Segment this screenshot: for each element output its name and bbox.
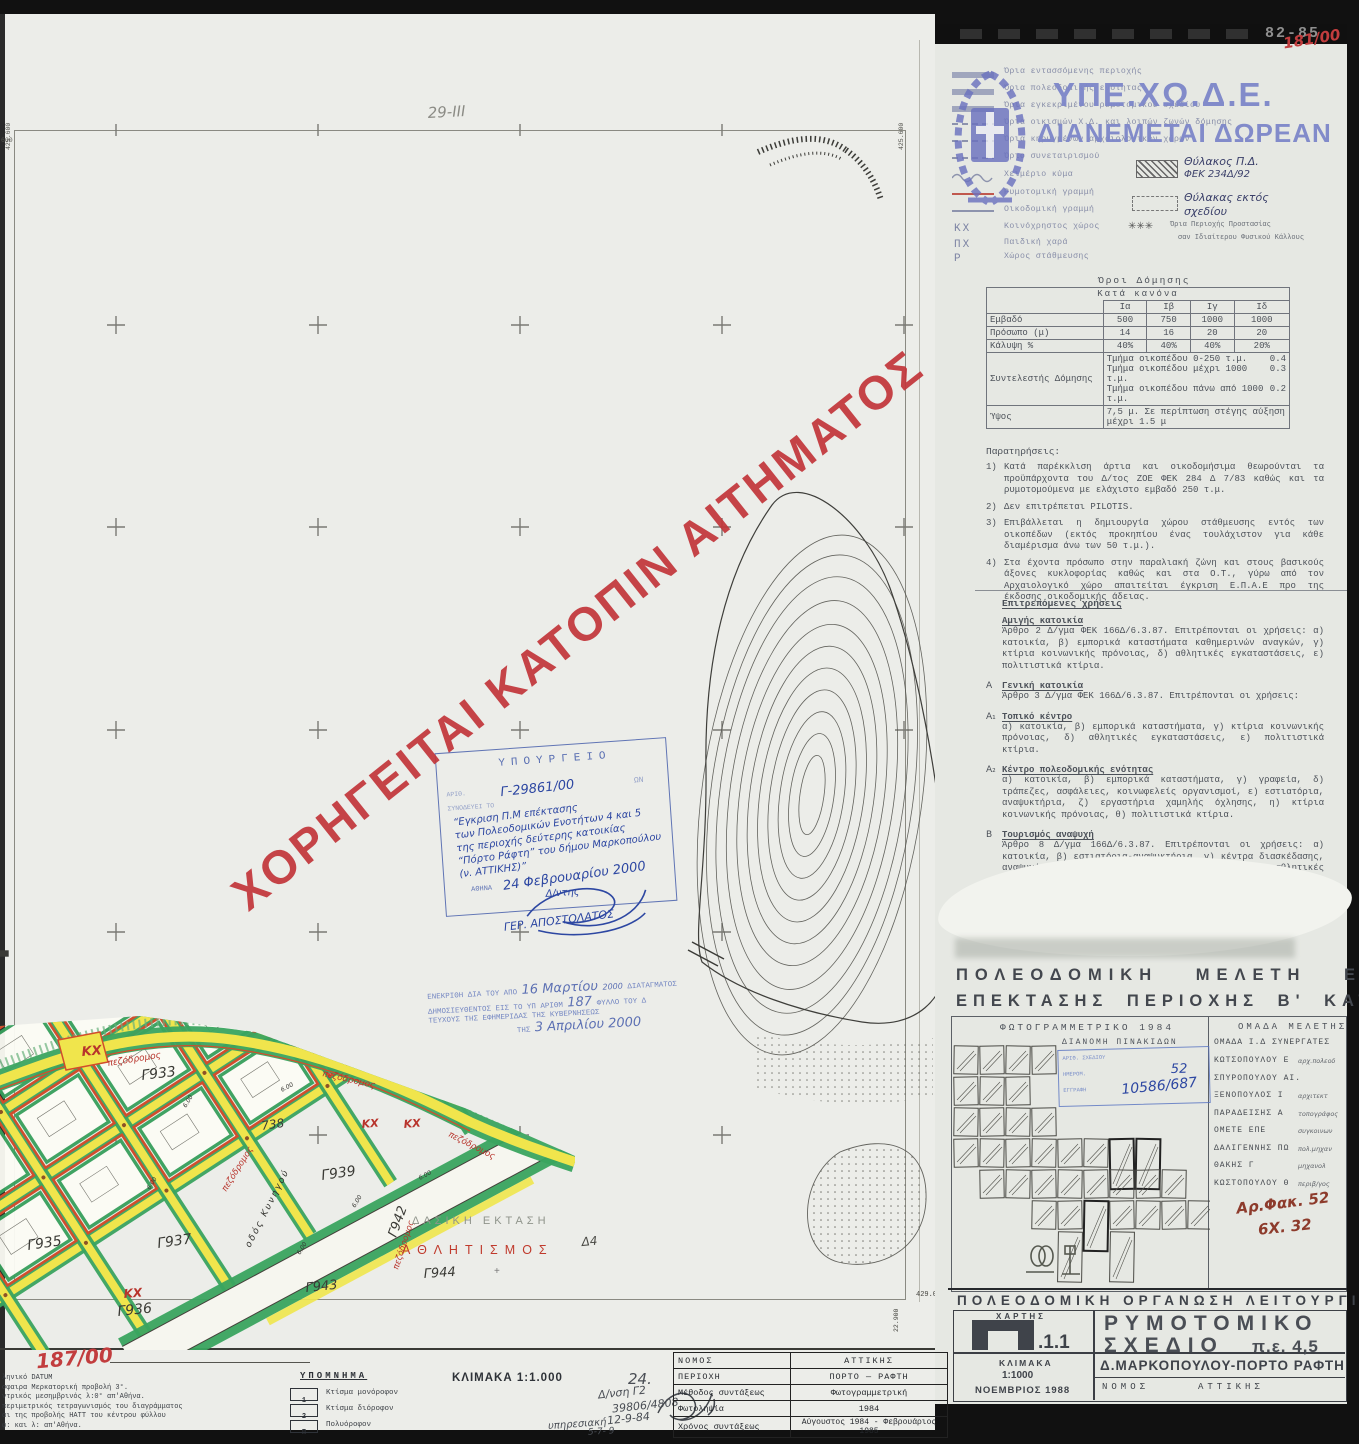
cell: 20 <box>1234 327 1289 340</box>
corner-dot <box>486 979 492 985</box>
map-label: ΔΑΣΙΚΗ ΕΚΤΑΣΗ <box>412 1215 550 1227</box>
use-heading: Αμιγής κατοικία <box>1002 616 1324 626</box>
cell: 40% <box>1103 340 1147 353</box>
height-label: Ύψος <box>987 406 1104 429</box>
use-prefix: Α <box>986 681 992 691</box>
note-item: 1)Κατά παρέκκλιση άρτια και οικοδομήσιμα… <box>986 462 1324 497</box>
grid-cross <box>511 721 529 739</box>
grid-cross <box>895 518 913 536</box>
team-group-line: ΟΜΑΔΑ Ι.Δ ΣΥΝΕΡΓΑΤΕΣ <box>1214 1038 1330 1047</box>
plan-word-1: ΡΥΜΟΤΟΜΙΚΟ <box>1104 1312 1319 1336</box>
note-item: 3)Επιβάλλεται η δημιουργία χώρου στάθμευ… <box>986 518 1324 553</box>
height-value: 7,5 μ. Σε περίπτωση στέγης αύξηση μέχρι … <box>1103 406 1289 429</box>
pocket-dash-symbol <box>1132 196 1178 211</box>
cell: 750 <box>1147 314 1191 327</box>
row-front-label: Πρόσωπο (μ) <box>987 327 1104 340</box>
stamp-ref1: ΑΡΙΘ. <box>446 790 466 798</box>
member-role: περιβ/γος <box>1298 1180 1330 1188</box>
stars-label2: σαν Ιδιαίτερου Φυσικού Κάλλους <box>1178 234 1304 242</box>
map-label: Γ936 <box>117 1300 153 1320</box>
member-name: ΚΩΣΤΟΠΟΥΛΟΥ Θ <box>1214 1179 1289 1188</box>
grid-cross <box>107 518 125 536</box>
tbl-value-0: ΑΤΤΙΚΗΣ <box>791 1353 948 1369</box>
note-number: 3) <box>986 518 997 528</box>
map-tile <box>1110 1201 1134 1229</box>
tbl-value-3: 1984 <box>791 1401 948 1417</box>
grid-cross <box>713 721 731 739</box>
use-section: Α₁Τοπικό κέντροα) κατοικία, β) εμπορικά … <box>1002 712 1324 757</box>
tbl-label-0: ΝΟΜΟΣ <box>674 1353 791 1369</box>
pocket1-line2: ΦΕΚ 234Δ/92 <box>1184 169 1250 180</box>
member-name: ΞΕΝΟΠΟΥΛΟΣ Ι <box>1214 1091 1284 1100</box>
appr-hw2: 187 <box>567 994 593 1010</box>
top-bar-glyphs <box>960 29 1260 39</box>
corner-dot <box>36 992 42 998</box>
use-body: α) κατοικία, β) εμπορικά καταστήματα, γ)… <box>1002 775 1324 821</box>
legend-item-label: Χώρος στάθμευσης <box>1004 252 1089 261</box>
notes-title: Παρατηρήσεις: <box>986 446 1060 457</box>
map-label: Γ939 <box>320 1163 357 1184</box>
use-heading: Τοπικό κέντρο <box>1002 712 1324 722</box>
plan-number-handwritten: 52 <box>1171 1062 1188 1077</box>
map-label: Γ935 <box>26 1233 63 1254</box>
map-label: 429.000 <box>916 1291 935 1299</box>
map-tile <box>1058 1139 1082 1167</box>
municipality: Δ.ΜΑΡΚΟΠΟΥΛΟΥ-ΠΟΡΤΟ ΡΑΦΤΗ <box>1100 1358 1345 1373</box>
nomos-label: ΝΟΜΟΣ <box>1102 1382 1149 1392</box>
datum-line: φ: και λ: απ'Αθήνα. <box>2 1422 82 1430</box>
member-role: αρχ.πολεοδ <box>1298 1057 1336 1065</box>
building-type-label: Κτίσμα διόροφον <box>326 1405 394 1413</box>
col-Ic: Ιγ <box>1190 301 1234 314</box>
scale-icons <box>1022 1240 1102 1282</box>
map-tile <box>980 1139 1004 1167</box>
datum-line: ληνικό DATUM <box>2 1374 52 1382</box>
rock-hatch-shore <box>758 139 881 200</box>
grid-cross <box>107 721 125 739</box>
cell: 16 <box>1147 327 1191 340</box>
map-tile <box>1032 1046 1056 1074</box>
map-tile <box>1058 1201 1082 1229</box>
note-item: 2)Δεν επιτρέπεται PILOTIS. <box>986 502 1324 514</box>
corner-dot <box>405 1031 411 1037</box>
grid-cross <box>309 923 327 941</box>
grid-cross <box>713 316 731 334</box>
use-section: Αμιγής κατοικίαΆρθρο 2 Δ/γμα ΦΕΚ 166Δ/6.… <box>1002 616 1324 672</box>
plan-pe: π.ε. 4,5 <box>1252 1337 1319 1357</box>
terms-subtitle: Κατά κανόνα <box>987 288 1290 301</box>
map-tile <box>1006 1046 1030 1074</box>
grid-cross <box>511 518 529 536</box>
appr-l4a: ΤΗΣ <box>517 1027 531 1036</box>
cell: 1000 <box>1190 314 1234 327</box>
use-prefix: Α₁ <box>986 712 996 722</box>
legend-code: Ρ <box>954 253 963 265</box>
corner-dot <box>401 848 407 854</box>
sd-line: Τμήμα οικοπέδου μέχρι 1000 τ.μ.0.3 <box>1107 364 1286 384</box>
note-number: 1) <box>986 462 997 472</box>
member-role: πολ.μηχαν <box>1298 1145 1332 1153</box>
tbl-value-4: Αύγουστος 1984 - Φεβρουάριος 1985 <box>791 1417 948 1438</box>
corner-dot <box>159 1005 165 1011</box>
col-Ia: Ια <box>1103 301 1147 314</box>
tbl-value-1: ΠΟΡΤΟ — ΡΑΦΤΗ <box>791 1369 948 1385</box>
stars-symbol: ✳✳✳ <box>1128 221 1153 232</box>
scanned-urban-plan-sheet: 82-85 181/00 <box>0 0 1359 1444</box>
gray-streak <box>955 938 1295 958</box>
sd-line: Τμήμα οικοπέδου 0-250 τ.μ.0.4 <box>1107 354 1286 364</box>
map-tile <box>1006 1139 1030 1167</box>
datum-line: σφαιρα Μερκατορική προβολή 3°. <box>2 1384 128 1392</box>
footer-scale: 1:1000 <box>1002 1370 1033 1381</box>
building-type-symbol: 1 <box>290 1388 318 1401</box>
grid-cross <box>511 316 529 334</box>
map-label: ΑΘΛΗΤΙΣΜΟΣ <box>402 1243 554 1257</box>
uses-title: Επιτρεπόμενες χρήσεις <box>1002 598 1122 609</box>
grid-cross <box>309 518 327 536</box>
study-title-2: ΕΠΕΚΤΑΣΗΣ ΠΕΡΙΟΧΗΣ Β' ΚΑΤΟΙΚΙΑΣ <box>956 992 1359 1011</box>
note-number: 4) <box>986 558 997 568</box>
pocket1-line1: Θύλακος Π.Δ. <box>1184 155 1259 168</box>
footer-divider-v <box>1093 1310 1095 1400</box>
stamp-header: ΥΠΟΥΡΓΕΙΟ <box>498 750 612 770</box>
use-prefix: Β <box>986 830 992 840</box>
map-tile <box>1032 1108 1056 1136</box>
map-label: 29-ΙΙΙ <box>427 102 466 122</box>
map-tile <box>1006 1077 1030 1105</box>
map-label: 6.00 <box>351 1194 364 1209</box>
corner-dot <box>363 966 369 972</box>
map-tile <box>1032 1170 1056 1198</box>
map-tile <box>980 1170 1004 1198</box>
nomos-value: ΑΤΤΙΚΗΣ <box>1198 1382 1264 1392</box>
stamp-sub-right: ΩΝ <box>634 776 644 786</box>
corner-dot <box>320 900 326 906</box>
terms-title: Όροι Δόμησης <box>1098 275 1190 286</box>
beach-dotfield <box>752 1032 933 1103</box>
use-body: Άρθρο 3 Δ/γμα ΦΕΚ 166Δ/6.3.87. Επιτρέπον… <box>1002 691 1324 703</box>
stamp-city: ΑΘΗΝΑ <box>471 885 493 894</box>
building-type-symbol: 2 <box>290 1404 318 1417</box>
registry-line3: ΕΓΓΡΑΦΗ <box>1063 1086 1086 1094</box>
tbl-label-2: Μέθοδος συντάξεως <box>674 1385 791 1401</box>
use-heading: Τουρισμός αναψυχή <box>1002 830 1324 840</box>
grid-cross <box>107 923 125 941</box>
cell: 14 <box>1103 327 1147 340</box>
row-coverage-label: Κάλυψη % <box>987 340 1104 353</box>
legend-code: ΚΧ <box>954 223 971 235</box>
map-tile <box>1162 1201 1186 1229</box>
use-prefix: Α₂ <box>986 765 996 775</box>
footer-scale-label: ΚΛΙΜΑΚΑ <box>999 1358 1053 1368</box>
map-tile <box>1110 1139 1135 1189</box>
member-role: συγκοινων <box>1298 1127 1332 1135</box>
map-label: ΚΧ <box>123 1285 143 1301</box>
team-header: ΟΜΑΔΑ ΜΕΛΕΤΗΣ <box>1238 1022 1347 1032</box>
note-text: Κατά παρέκκλιση άρτια και οικοδομήσιμα θ… <box>1004 462 1324 497</box>
map-label: 600 <box>1 137 13 144</box>
appr-hw1b: 2000 <box>602 982 623 992</box>
map-label: Γ943 <box>305 1278 338 1296</box>
map-tile <box>1188 1201 1210 1229</box>
greek-state-emblem <box>936 60 1044 212</box>
member-name: ΣΠΥΡΟΠΟΥΛΟΥ ΑΙ. <box>1214 1074 1301 1083</box>
sd-label: Συντελεστής Δόμησης <box>987 353 1104 406</box>
grid-cross <box>309 721 327 739</box>
cell: 1000 <box>1234 314 1289 327</box>
map-tile <box>980 1108 1004 1136</box>
scan-edge-top-right <box>935 0 1359 24</box>
photogrammetric-header: ΦΩΤΟΓΡΑΜΜΕΤΡΙΚΟ 1984 <box>1000 1022 1174 1033</box>
legend-code: ΠΧ <box>954 239 971 251</box>
scan-edge-bottom-right <box>935 1404 1359 1444</box>
ministry-watermark: ΥΠΕ.ΧΩ.Δ.Ε. <box>1053 76 1274 114</box>
legend-item-label: Παιδική χαρά <box>1004 238 1068 247</box>
member-name: ΔΑΛΙΓΕΝΝΗΣ ΠΩ <box>1214 1144 1289 1153</box>
ministry-stamp: ΥΠΟΥΡΓΕΙΟ ΩΝ ΑΡΙΘ. ΣΥΝΟΔΕΥΕΙ ΤΟ Γ-29861/… <box>435 737 678 917</box>
city-block-red-outline <box>252 913 356 1011</box>
map-tile <box>1032 1139 1056 1167</box>
pencil-note: 24. <box>628 1370 652 1388</box>
map-label: + <box>494 1266 500 1277</box>
stamp-ref2: ΣΥΝΟΔΕΥΕΙ ΤΟ <box>447 802 494 812</box>
uses-sections: Αμιγής κατοικίαΆρθρο 2 Δ/γμα ΦΕΚ 166Δ/6.… <box>1002 616 1324 895</box>
tbl-label-3: Φωτοληψία <box>674 1401 791 1417</box>
footer-title: ΠΟΛΕΟΔΟΜΙΚΗ ΟΡΓΑΝΩΣΗ ΛΕΙΤΟΥΡΓΙΕΣ <box>957 1293 1359 1308</box>
map-tile <box>954 1046 978 1074</box>
pencil-note: 5-7- 9 <box>588 1426 615 1437</box>
use-section: ΑΓενική κατοικίαΆρθρο 3 Δ/γμα ΦΕΚ 166Δ/6… <box>1002 681 1324 703</box>
city-block <box>135 905 228 992</box>
note-text: Επιβάλλεται η δημιουργία χώρου στάθμευση… <box>1004 518 1324 553</box>
note-number: 2) <box>986 502 997 512</box>
coastline <box>699 492 935 1023</box>
pier <box>0 942 724 966</box>
map-tile <box>1136 1170 1160 1198</box>
corner-dot <box>282 1018 288 1024</box>
grid-cross <box>309 316 327 334</box>
corner-dot <box>197 887 203 893</box>
city-block-red-outline <box>333 860 437 958</box>
note-item: 4)Στα έχοντα πρόσωπο στην παραλιακή ζώνη… <box>986 558 1324 604</box>
map-label: ΚΧ <box>361 1117 380 1131</box>
corner-dot <box>240 952 246 958</box>
tbl-label-1: ΠΕΡΙΟΧΗ <box>674 1369 791 1385</box>
use-heading: Κέντρο πολεοδομικής ενότητας <box>1002 765 1324 775</box>
datum-line: αι της προβολής ΗΑΤΤ του κέντρου φύλλου <box>2 1412 166 1420</box>
footer-heavy-line <box>948 1288 1347 1290</box>
member-role: αρχιτεκτ <box>1298 1092 1328 1100</box>
footer-date: ΝΟΕΜΒΡΙΟΣ 1988 <box>975 1385 1070 1396</box>
separator-line <box>975 590 1347 591</box>
protocol-number-handwritten: 10586/687 <box>1121 1075 1198 1098</box>
note-text: Στα έχοντα πρόσωπο στην παραλιακή ζώνη κ… <box>1004 558 1324 604</box>
use-body: Άρθρο 2 Δ/γμα ΦΕΚ 166Δ/6.3.87. Επιτρέπον… <box>1002 626 1324 672</box>
map-label: 22.900 <box>893 1308 900 1332</box>
corner-dot <box>117 939 123 945</box>
footer-divider-h2 <box>1093 1377 1345 1378</box>
map-tile <box>1032 1201 1056 1229</box>
chart-code: .1.1 <box>1038 1332 1070 1354</box>
building-type-label: Κτίσμα μονόροφον <box>326 1389 398 1397</box>
cell: 20 <box>1190 327 1234 340</box>
member-name: ΠΑΡΑΔΕΙΣΗΣ Α <box>1214 1109 1284 1118</box>
member-name: ΟΜΕΤΕ ΕΠΕ <box>1214 1126 1266 1135</box>
islet-dotfield <box>808 1144 927 1265</box>
cell: 20% <box>1234 340 1289 353</box>
map-label: ΚΧ <box>403 1117 422 1131</box>
cell: 500 <box>1103 314 1147 327</box>
map-tile <box>1110 1232 1135 1282</box>
col-Ib: Ιβ <box>1147 301 1191 314</box>
map-tile <box>1136 1139 1161 1189</box>
map-label: ΚΧ <box>81 1043 103 1060</box>
map-tile <box>1084 1139 1108 1167</box>
pocket-hatch-symbol <box>1136 160 1178 178</box>
map-tile <box>954 1077 978 1105</box>
grid-cross <box>309 1126 327 1144</box>
scan-edge-right <box>1347 0 1359 1444</box>
map-tile <box>1136 1201 1160 1229</box>
note-text: Δεν επιτρέπεται PILOTIS. <box>1004 502 1324 514</box>
map-label: 425.600 <box>898 123 905 150</box>
map-tile <box>1006 1108 1030 1136</box>
registry-stamp: ΑΡΙΘ. ΣΧΕΔΙΟΥ ΗΜΕΡΟΜ. ΕΓΓΡΑΦΗ 52 10586/6… <box>1057 1046 1210 1107</box>
use-body: α) κατοικία, β) εμπορικά καταστήματα, γ)… <box>1002 722 1324 757</box>
tbl-label-4: Χρόνος συντάξεως <box>674 1417 791 1438</box>
region-info-table: ΝΟΜΟΣ ΑΤΤΙΚΗΣ ΠΕΡΙΟΧΗ ΠΟΡΤΟ — ΡΑΦΤΗ Μέθο… <box>673 1352 948 1438</box>
city-block <box>258 918 351 1005</box>
member-role: μηχανολ <box>1298 1162 1326 1170</box>
tbl-value-2: Φωτογραμμετρική <box>791 1385 948 1401</box>
cell: 40% <box>1190 340 1234 353</box>
study-title-1: ΠΟΛΕΟΔΟΜΙΚΗ ΜΕΛΕΤΗ ΕΝΤΑΞΗΣ <box>956 966 1359 985</box>
sd-lines: Τμήμα οικοπέδου 0-250 τ.μ.0.4Τμήμα οικοπ… <box>1103 353 1289 406</box>
stars-label1: Όρια Περιοχής Προστασίας <box>1170 221 1271 229</box>
building-type-symbol: Π <box>290 1420 318 1433</box>
map-tile <box>980 1077 1004 1105</box>
grid-cross <box>107 316 125 334</box>
datum-line: ντρικός μεσημβρινός λ:0° απ'Αθήνα. <box>2 1393 145 1401</box>
map-tile <box>954 1139 978 1167</box>
ministry-watermark-sub: ΔΙΑΝΕΜΕΤΑΙ ΔΩΡΕΑΝ <box>1037 118 1332 149</box>
pocket2-line2: σχεδίου <box>1184 205 1227 218</box>
map-label: Δ4 <box>580 1234 598 1249</box>
map-tile <box>954 1108 978 1136</box>
member-role: τοπογράφος <box>1298 1110 1338 1118</box>
stamp-number: Γ-29861/00 <box>500 777 575 800</box>
map-label: Γ937 <box>156 1231 193 1252</box>
city-block-red-outline <box>129 899 233 997</box>
registry-line2: ΗΜΕΡΟΜ. <box>1063 1070 1086 1078</box>
ref-underline <box>110 1362 310 1363</box>
map-tile <box>1162 1170 1186 1198</box>
cell: 40% <box>1147 340 1191 353</box>
grid-cross <box>713 1126 731 1144</box>
member-name: ΘΑΚΗΣ Γ <box>1214 1161 1255 1170</box>
building-type-label: Πολυόροφον <box>326 1421 371 1429</box>
map-label: Γ944 <box>423 1265 456 1282</box>
use-section: Α₂Κέντρο πολεοδομικής ενότηταςα) κατοικί… <box>1002 765 1324 821</box>
use-heading: Γενική κατοικία <box>1002 681 1324 691</box>
map-label: 738 <box>260 1116 285 1133</box>
map-tile <box>1084 1170 1108 1198</box>
legend-item-label: Κοινόχρηστος χώρος <box>1004 222 1100 231</box>
map-tile <box>1110 1170 1134 1198</box>
plan-word-2: ΣΧΕΔΙΟ <box>1104 1334 1224 1358</box>
row-area-label: Εμβαδό <box>987 314 1104 327</box>
map-tile <box>1006 1170 1030 1198</box>
terms-table: Κατά κανόνα Ια Ιβ Ιγ Ιδ Εμβαδό 500 750 1… <box>986 287 1290 429</box>
registry-line1: ΑΡΙΘ. ΣΧΕΔΙΟΥ <box>1062 1054 1105 1062</box>
map-tile <box>980 1046 1004 1074</box>
sd-line: Τμήμα οικοπέδου πάνω από 1000 τ.μ.0.2 <box>1107 384 1286 404</box>
notes-list: 1)Κατά παρέκκλιση άρτια και οικοδομήσιμα… <box>986 462 1324 609</box>
grid-cross <box>713 923 731 941</box>
pocket2-line1: Θύλακας εκτός <box>1184 191 1269 204</box>
grid-cross <box>895 316 913 334</box>
city-block <box>338 866 431 953</box>
pi-glyph <box>972 1320 1034 1350</box>
map-tile <box>1058 1170 1082 1198</box>
col-Id: Ιδ <box>1234 301 1289 314</box>
datum-line: περιμετρικός τετραγωνισμός του διαγράμμα… <box>2 1403 183 1411</box>
member-name: ΚΩΤΣΟΠΟΥΛΟΥ Ε <box>1214 1056 1289 1065</box>
